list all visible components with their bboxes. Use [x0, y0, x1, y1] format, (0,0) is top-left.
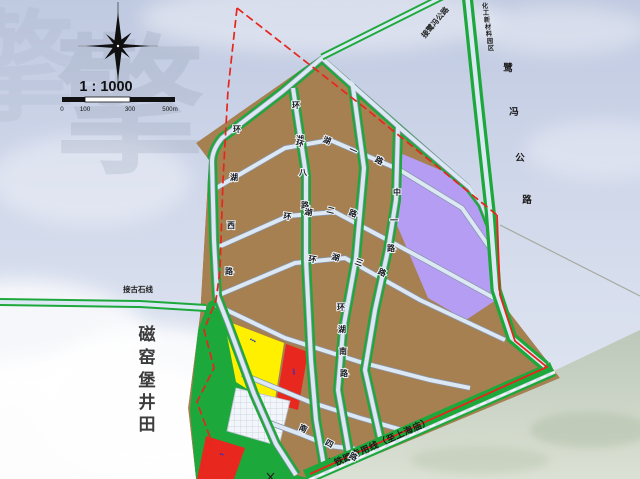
road-label-char: 环: [233, 125, 241, 134]
lufeng-highway-label: 鹭 冯 公 路: [503, 62, 532, 206]
scale-tick: 300: [125, 106, 136, 113]
chem-park-char: 料: [486, 30, 493, 38]
mine-field-char: 磁: [139, 324, 156, 344]
planning-map: 擎 擎: [0, 0, 640, 479]
mine-field-char: 田: [139, 415, 156, 434]
chem-park-char: 区: [488, 44, 495, 52]
mine-field-label: 磁 窑 堡 井 田: [139, 324, 156, 434]
chem-park-char: 园: [487, 37, 493, 45]
chem-park-char: 材: [484, 23, 492, 31]
watermark-character-2: 擎: [0, 2, 75, 136]
road-label-char: 环: [283, 212, 292, 222]
road-label-char: 中: [393, 187, 401, 197]
mine-field-char: 堡: [139, 370, 156, 390]
gushi-line-label: 接古石线: [123, 284, 153, 294]
dirt-track-line: [500, 225, 640, 296]
mine-field-char: 井: [139, 392, 156, 412]
road-label-char: 一: [390, 216, 398, 225]
scale-ratio: 1 : 1000: [79, 79, 132, 95]
scale-tick: 500m: [162, 106, 177, 113]
lufeng-char: 公: [515, 153, 525, 164]
scale-tick: 0: [60, 106, 64, 113]
road-label-char: 湖: [338, 324, 346, 334]
lufeng-char: 冯: [509, 106, 519, 118]
road-label-char: 南: [339, 346, 347, 356]
mine-field-char: 窑: [139, 347, 156, 367]
road-label-char: 路: [340, 368, 349, 378]
road-label-char: 湖: [304, 206, 314, 217]
chem-park-char: 新: [484, 16, 491, 24]
red-zone-a-mark: ▪▪▪: [289, 368, 296, 375]
road-label-char: 八: [298, 168, 308, 177]
chem-park-char: 化: [482, 2, 489, 10]
scale-tick: 100: [80, 106, 91, 113]
chem-park-char: 工: [483, 10, 490, 17]
road-label-char: 环: [337, 303, 345, 312]
road-label-char: 路: [387, 243, 396, 253]
road-label-char: 路: [225, 266, 234, 276]
road-label-char: 环: [308, 254, 317, 264]
road-label-char: 湖: [230, 172, 238, 182]
lufeng-char: 路: [522, 194, 532, 206]
road-label-char: 环: [292, 101, 300, 110]
lufeng-char: 鹭: [503, 62, 513, 74]
road-label-char: 西: [227, 221, 235, 230]
